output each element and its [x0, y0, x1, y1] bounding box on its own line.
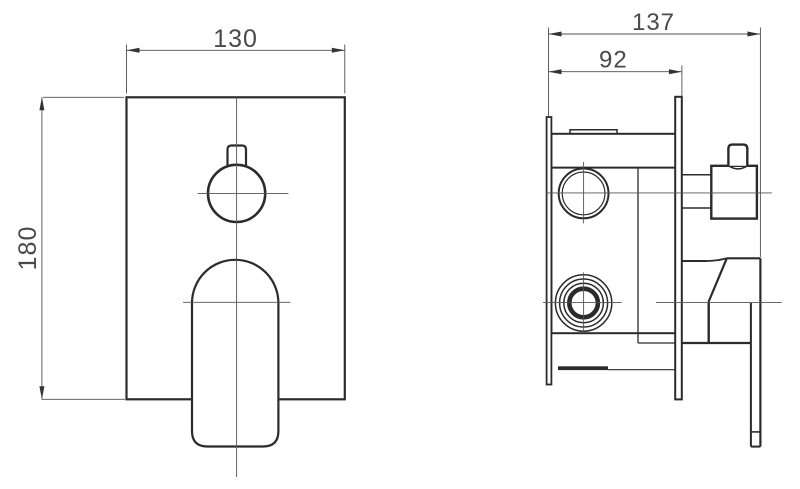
front-view: 130 180 [14, 25, 345, 477]
technical-drawing-canvas: 130 180 [0, 0, 800, 489]
side-bottom-clip [558, 366, 608, 370]
side-plate-edge [675, 97, 682, 400]
dimension-label-92: 92 [599, 47, 628, 74]
arrowhead-left [549, 32, 562, 37]
front-handle-lever [192, 260, 278, 447]
arrowhead-right [669, 69, 682, 74]
lever-fillet-arc [707, 258, 727, 261]
lever-diagonal-edge [709, 258, 727, 301]
arrowhead-left [127, 48, 140, 53]
dimension-label-130: 130 [213, 25, 258, 53]
dimension-label-137: 137 [632, 9, 675, 36]
mixer-valve-drawing: 130 180 [0, 0, 800, 489]
arrowhead-right [332, 48, 345, 53]
side-wall-strip [547, 117, 552, 385]
side-knob-body [711, 166, 757, 219]
arrowhead-top [39, 97, 44, 110]
arrowhead-right [747, 32, 760, 37]
dimension-front-height: 180 [14, 97, 125, 399]
side-knob-stem [728, 145, 747, 166]
dimension-label-180: 180 [14, 226, 42, 271]
arrowhead-bottom [39, 386, 44, 399]
dimension-side-recess-depth: 92 [549, 47, 682, 97]
dimension-front-width: 130 [127, 25, 345, 94]
side-view: 137 92 [543, 9, 782, 447]
side-handle-lever [682, 258, 761, 446]
arrowhead-left [549, 69, 562, 74]
